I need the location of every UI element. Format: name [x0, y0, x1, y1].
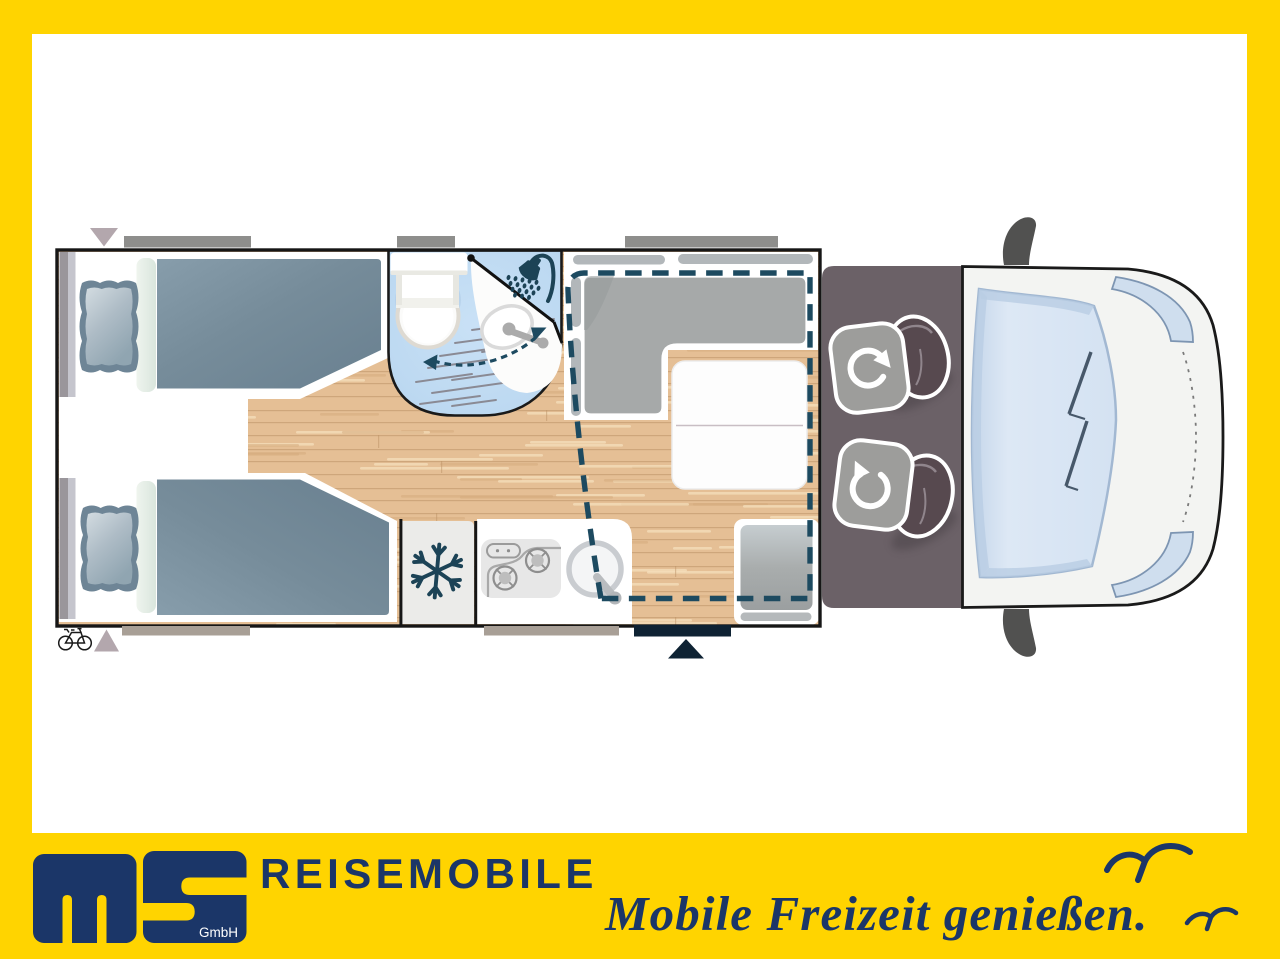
- svg-text:Mobile Freizeit genießen.: Mobile Freizeit genießen.: [604, 886, 1148, 941]
- svg-text:REISEMOBILE: REISEMOBILE: [260, 850, 598, 897]
- svg-text:GmbH: GmbH: [199, 925, 238, 940]
